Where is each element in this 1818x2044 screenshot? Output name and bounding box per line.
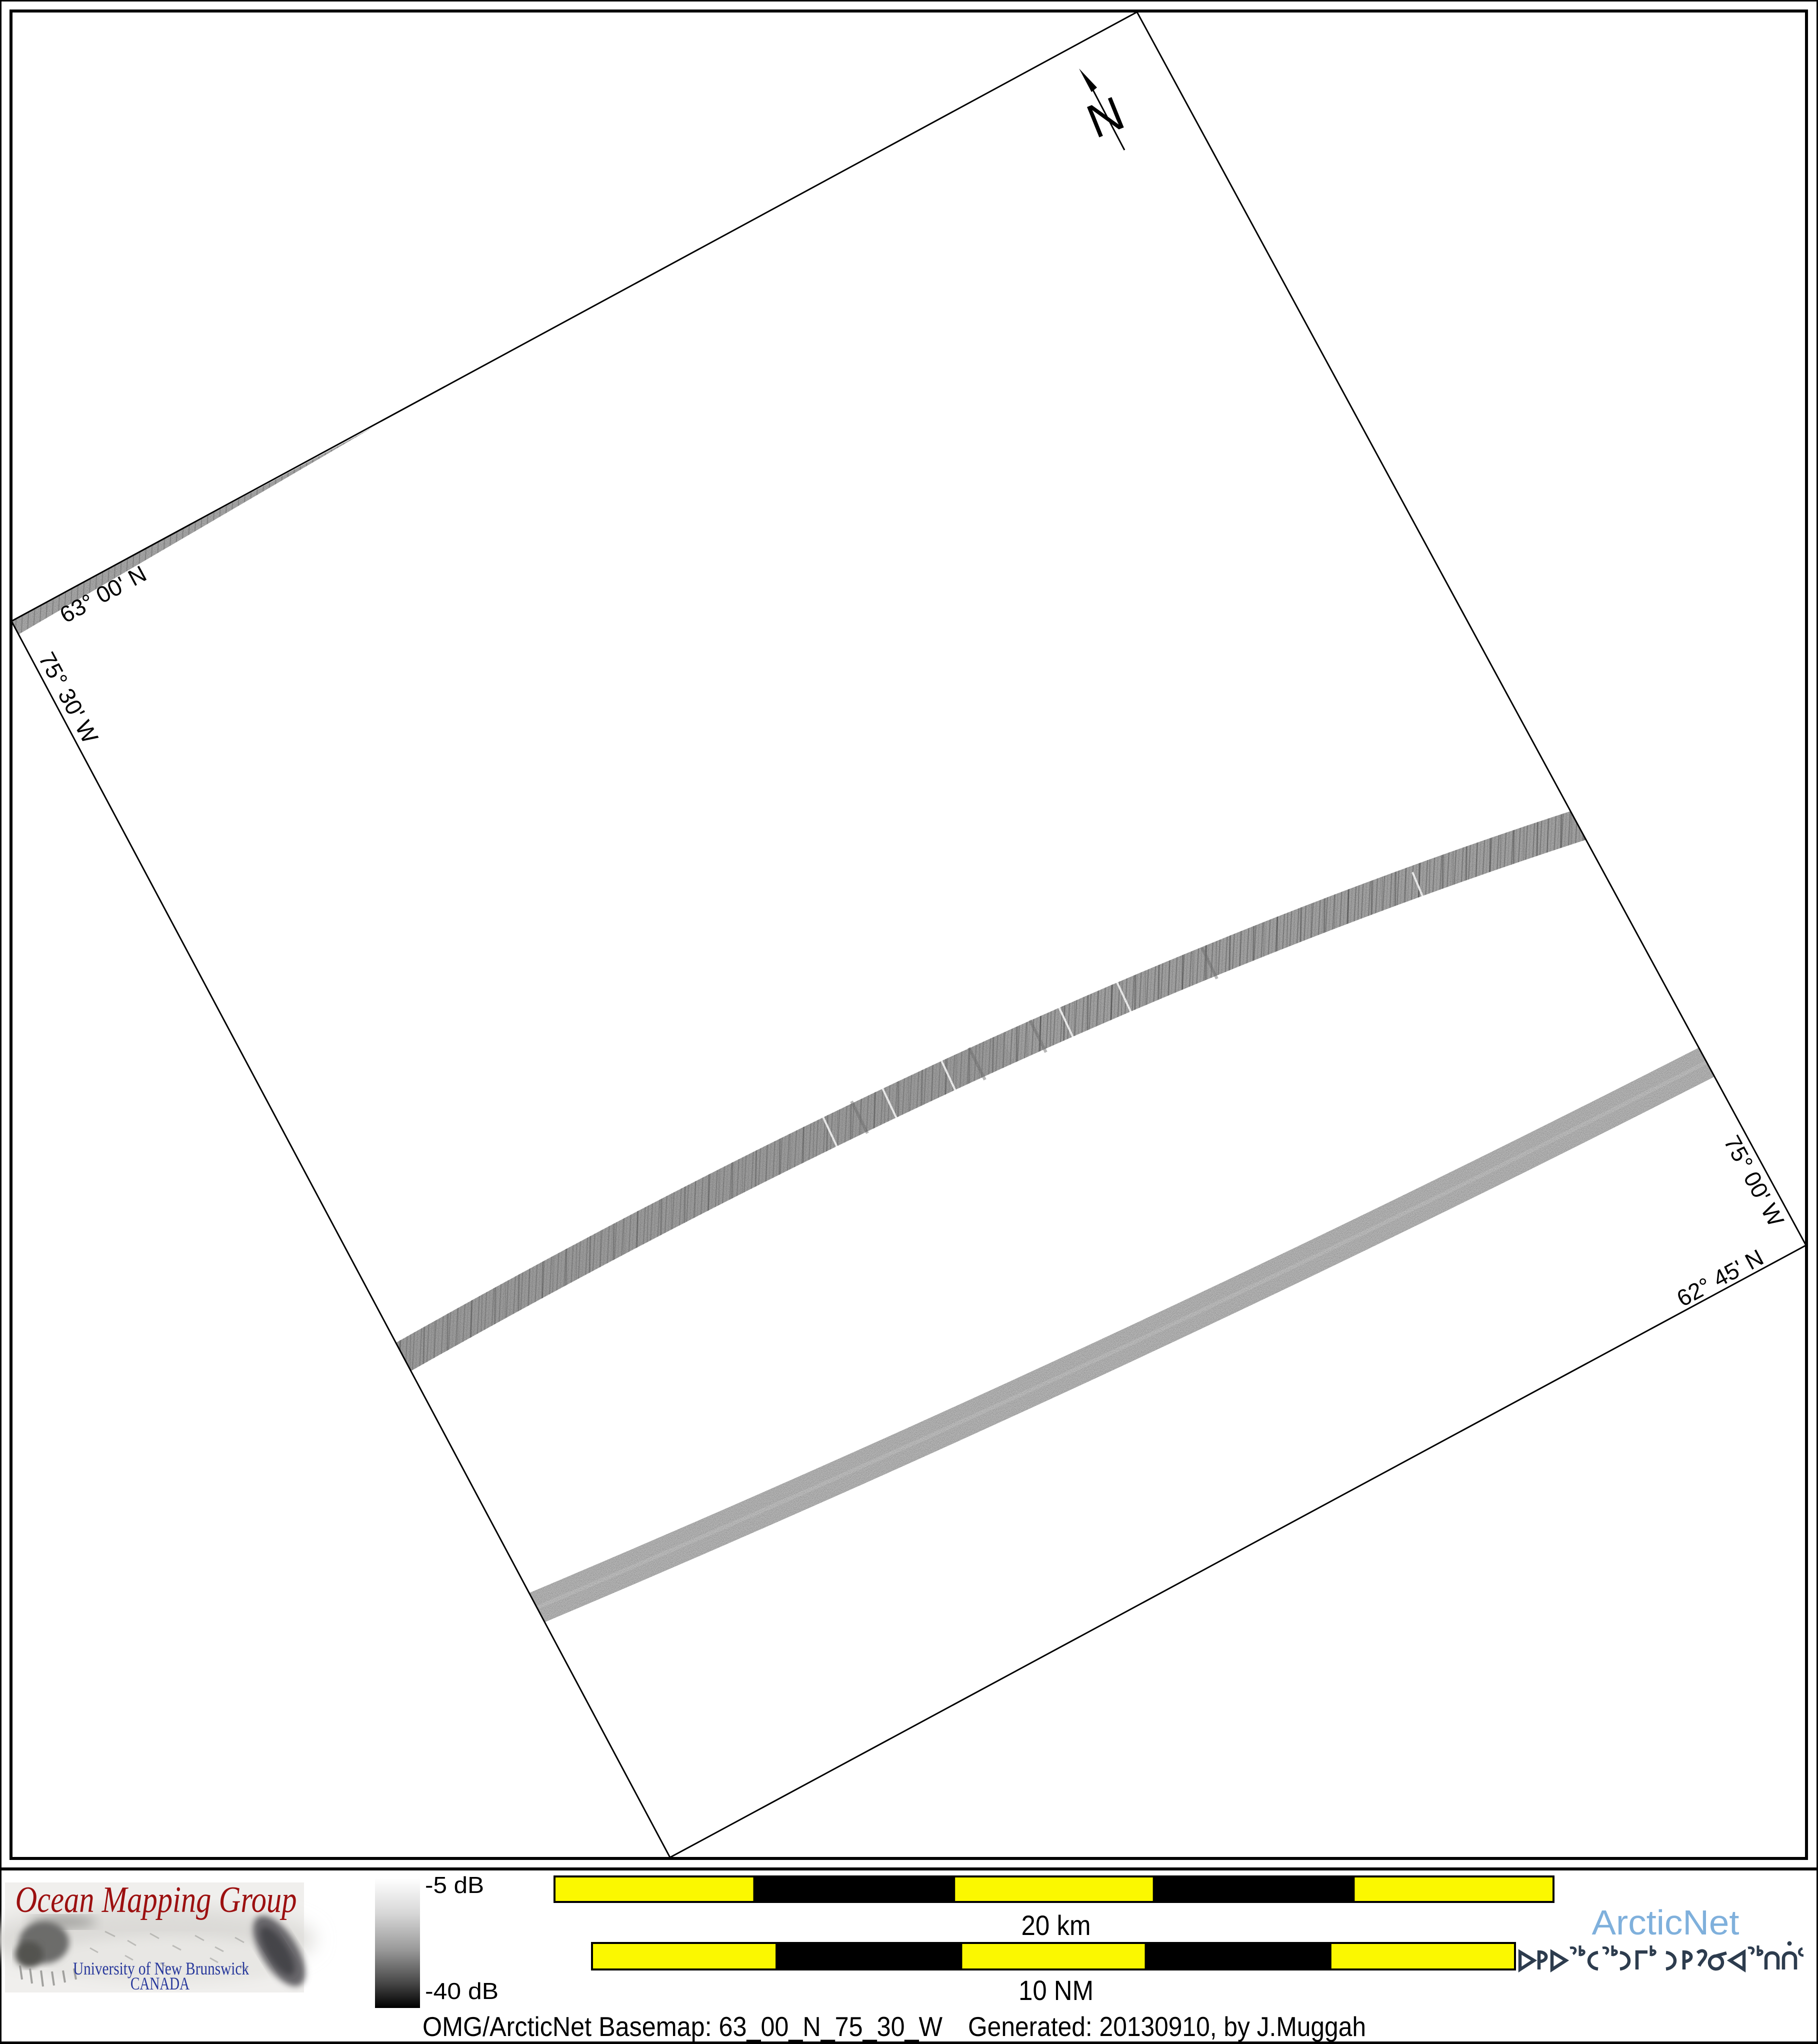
svg-text:-5 dB: -5 dB (425, 1872, 484, 1898)
svg-text:OMG/ArcticNet Basemap: 63_00_N: OMG/ArcticNet Basemap: 63_00_N_75_30_W (422, 2011, 942, 2042)
svg-text:Ocean Mapping Group: Ocean Mapping Group (15, 1879, 297, 1920)
svg-text:Generated: 20130910, by J.Mugg: Generated: 20130910, by J.Muggah (968, 2011, 1366, 2042)
svg-text:ArcticNet: ArcticNet (1592, 1903, 1739, 1942)
svg-text:CANADA: CANADA (130, 1973, 189, 1993)
svg-text:-40 dB: -40 dB (425, 1978, 498, 2004)
svg-text:10 NM: 10 NM (1018, 1974, 1093, 2006)
svg-text:20 km: 20 km (1021, 1909, 1091, 1941)
